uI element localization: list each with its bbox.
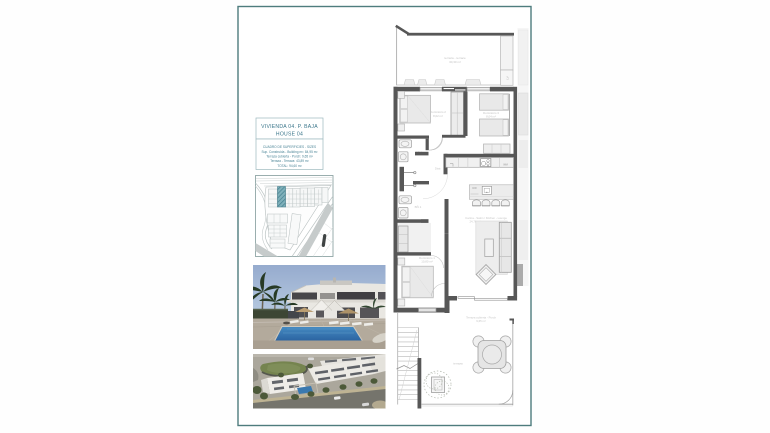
svg-text:Sup. Construida - Building m²: Sup. Construida - Building m²: 84,95 m² xyxy=(262,150,318,154)
svg-text:TOTAL: 94,60 m²: TOTAL: 94,60 m² xyxy=(277,164,301,168)
svg-text:8,02 m²: 8,02 m² xyxy=(433,114,443,118)
svg-text:LV: LV xyxy=(506,76,510,79)
svg-text:9,65 m²: 9,65 m² xyxy=(476,319,486,323)
svg-text:Distr.: Distr. xyxy=(435,167,442,171)
svg-text:30,30 m²: 30,30 m² xyxy=(449,60,461,64)
svg-text:VIVIENDA 04. P. BAJA: VIVIENDA 04. P. BAJA xyxy=(261,124,318,130)
svg-text:10,80 m²: 10,80 m² xyxy=(421,259,432,263)
svg-text:CUADRO DE SUPERFICIES - SIZES: CUADRO DE SUPERFICIES - SIZES xyxy=(263,145,316,149)
svg-text:HOUSE 04: HOUSE 04 xyxy=(276,132,303,138)
svg-text:DW: DW xyxy=(472,186,477,190)
svg-text:terraza: terraza xyxy=(453,362,463,366)
svg-text:Terraza cubierta - Porch: 9,6: Terraza cubierta - Porch: 9,65 m² xyxy=(266,155,313,159)
svg-text:WM: WM xyxy=(503,163,508,167)
svg-text:8,04 m²: 8,04 m² xyxy=(486,115,496,119)
svg-text:Terraza - Terraza: 43,89 m²: Terraza - Terraza: 43,89 m² xyxy=(270,159,308,163)
svg-text:BÑ 1: BÑ 1 xyxy=(415,204,422,209)
